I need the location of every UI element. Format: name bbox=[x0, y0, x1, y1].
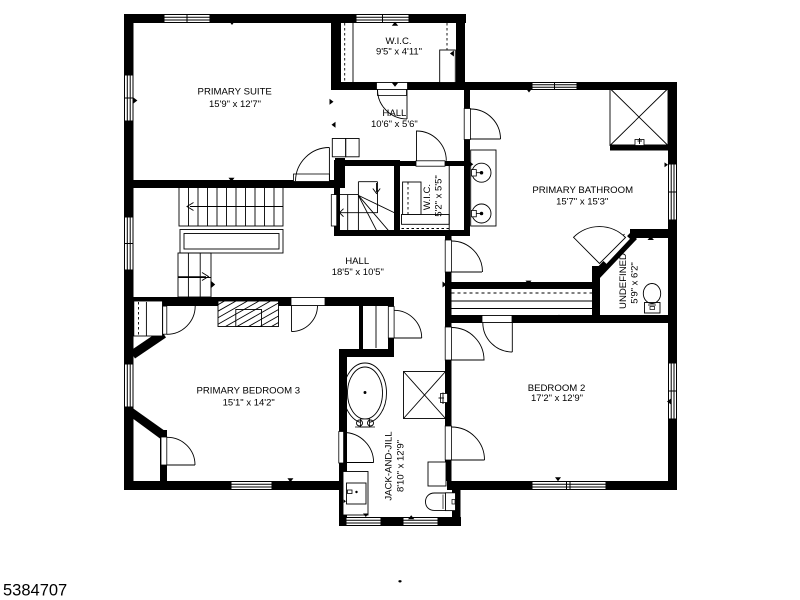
svg-text:15'9" x 12'7": 15'9" x 12'7" bbox=[209, 99, 261, 110]
svg-text:PRIMARY BEDROOM 3: PRIMARY BEDROOM 3 bbox=[196, 386, 300, 397]
svg-text:5384707: 5384707 bbox=[3, 582, 67, 600]
svg-text:W.I.C.: W.I.C. bbox=[385, 36, 411, 47]
svg-text:8'10" x 12'9": 8'10" x 12'9" bbox=[395, 440, 406, 492]
svg-text:JACK-AND-JILL: JACK-AND-JILL bbox=[384, 431, 395, 501]
svg-text:18'5" x 10'5": 18'5" x 10'5" bbox=[332, 267, 384, 278]
svg-text:PRIMARY BATHROOM: PRIMARY BATHROOM bbox=[532, 185, 633, 196]
svg-text:15'1" x 14'2": 15'1" x 14'2" bbox=[223, 397, 275, 408]
svg-text:PRIMARY SUITE: PRIMARY SUITE bbox=[198, 87, 272, 98]
svg-text:HALL: HALL bbox=[382, 108, 407, 119]
svg-text:HALL: HALL bbox=[345, 256, 370, 267]
svg-text:10'6" x 5'6": 10'6" x 5'6" bbox=[371, 119, 418, 130]
svg-text:5'9" x 6'2": 5'9" x 6'2" bbox=[630, 262, 641, 304]
svg-text:W.I.C.: W.I.C. bbox=[422, 184, 433, 210]
svg-text:5'2" x 5'5": 5'2" x 5'5" bbox=[434, 175, 445, 217]
svg-text:17'2" x 12'9": 17'2" x 12'9" bbox=[531, 393, 583, 404]
svg-text:UNDEFINED: UNDEFINED bbox=[618, 253, 629, 309]
svg-text:9'5" x 4'11": 9'5" x 4'11" bbox=[376, 47, 422, 58]
svg-text:15'7" x 15'3": 15'7" x 15'3" bbox=[556, 196, 608, 207]
